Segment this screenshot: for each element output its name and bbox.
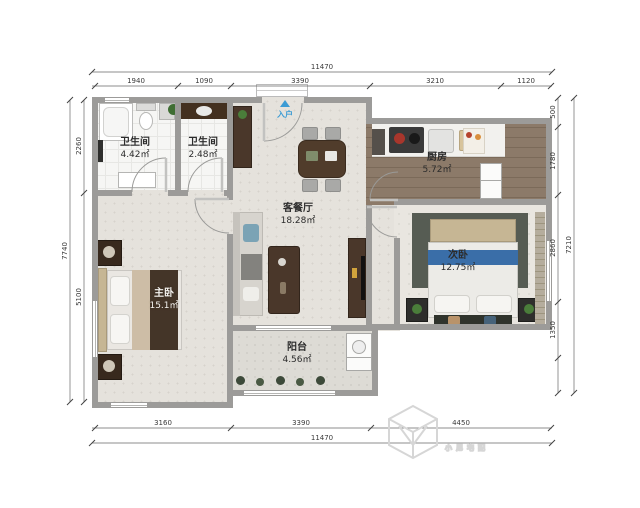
fridge-icon: [480, 163, 502, 199]
master-bed-blanket: [132, 270, 150, 350]
lamp-icon: [103, 360, 115, 372]
toilet-bowl: [139, 112, 153, 130]
bed2-blue-band: [428, 250, 518, 265]
vanity-sink: [196, 106, 212, 116]
dining-chair: [325, 127, 341, 140]
plant-icon: [524, 304, 534, 314]
coffee-table: [268, 246, 300, 314]
tv-icon: [361, 256, 365, 300]
bed2-headboard: [430, 219, 516, 242]
wall: [227, 234, 233, 408]
wall: [92, 358, 98, 408]
wall: [168, 190, 188, 196]
spice-dot-red: [466, 132, 472, 138]
dim-top-seg: 1940: [127, 77, 145, 85]
dim-top-total: 11470: [311, 63, 333, 71]
plant-icon: [238, 110, 247, 119]
stove-burner-dark: [409, 133, 420, 144]
toilet-tank: [136, 103, 156, 111]
window: [243, 390, 336, 396]
master-bed-pillow: [110, 314, 130, 344]
wall: [92, 97, 98, 300]
wall: [148, 402, 233, 408]
wall: [130, 97, 262, 103]
radiator: [118, 172, 156, 188]
sliding-door: [255, 325, 332, 331]
entry-threshold-line: [257, 90, 307, 91]
dim-right-seg: 500: [549, 105, 557, 118]
master-bed-headboard: [98, 268, 107, 352]
wall: [92, 402, 110, 408]
stove-burner-red: [394, 133, 405, 144]
dining-chair: [325, 179, 341, 192]
watermark: 小尼宅配: [385, 400, 635, 470]
dim-left-seg: 5100: [75, 288, 83, 306]
wall: [227, 390, 243, 396]
watermark-cube-icon: [389, 406, 437, 458]
dim-bottom-seg: 3390: [292, 419, 310, 427]
wall: [394, 238, 400, 330]
washing-machine-drum: [352, 340, 366, 354]
dim-left-seg: 2260: [75, 137, 83, 155]
wall: [546, 302, 552, 330]
dim-right-total: 7210: [565, 236, 573, 254]
sofa-pillow-white: [243, 287, 259, 301]
wall: [175, 103, 181, 192]
sofa-pillow-blue: [243, 224, 259, 242]
dim-bottom-seg: 3160: [154, 419, 172, 427]
coffee-table-item: [278, 258, 286, 266]
entry-label: 入户: [271, 109, 299, 120]
watermark-text: 小尼宅配: [444, 443, 489, 452]
plant-icon: [236, 376, 245, 385]
wall: [366, 205, 372, 331]
curtain-strip: [535, 212, 545, 324]
window: [104, 97, 130, 103]
entry-arrow-icon: [280, 100, 290, 107]
dim-left-total: 7740: [61, 242, 69, 260]
tv-cabinet-item: [352, 268, 357, 278]
wall: [227, 325, 255, 331]
plant-icon: [316, 376, 325, 385]
plant-icon: [276, 376, 285, 385]
wall: [366, 97, 372, 124]
kitchen-sink: [428, 129, 454, 153]
dining-chair: [302, 127, 318, 140]
bed2-pillow: [476, 295, 512, 313]
dim-top-seg: 1120: [517, 77, 535, 85]
window: [110, 402, 148, 408]
lamp-icon: [103, 246, 115, 258]
wall: [227, 196, 233, 200]
bathtub-inner: [103, 107, 129, 137]
kitchen-cabinet: [372, 129, 385, 155]
dim-top-seg: 3210: [426, 77, 444, 85]
placemat: [306, 151, 318, 161]
washing-machine-divider: [347, 357, 371, 358]
floorplan-canvas: 11470 1940 1090 3390 3210 1120 3160 3390…: [0, 0, 640, 508]
wall: [227, 97, 233, 196]
plant-icon: [412, 304, 422, 314]
dim-bottom-total: 11470: [311, 434, 333, 442]
master-bed-pillow: [110, 276, 130, 306]
wall: [366, 118, 552, 124]
wall: [304, 97, 372, 103]
coffee-table-item: [280, 282, 286, 294]
wall: [92, 190, 132, 196]
master-bed-runner: [150, 270, 178, 350]
window: [546, 240, 552, 302]
placemat: [325, 151, 337, 161]
fridge-divider: [481, 180, 501, 181]
window: [92, 300, 98, 358]
dim-bottom-seg: 4450: [452, 419, 470, 427]
plant-icon: [256, 378, 264, 386]
sofa-back: [233, 212, 240, 316]
spice-dot-orange: [475, 134, 481, 140]
sofa-throw-gray: [241, 254, 262, 280]
dining-chair: [302, 179, 318, 192]
wall: [372, 330, 378, 396]
bed2-pillow: [434, 295, 470, 313]
wall: [336, 390, 378, 396]
wall: [394, 199, 400, 205]
plant-icon: [296, 378, 304, 386]
wall: [400, 199, 546, 205]
dim-top-seg: 1090: [195, 77, 213, 85]
wall: [546, 118, 552, 240]
